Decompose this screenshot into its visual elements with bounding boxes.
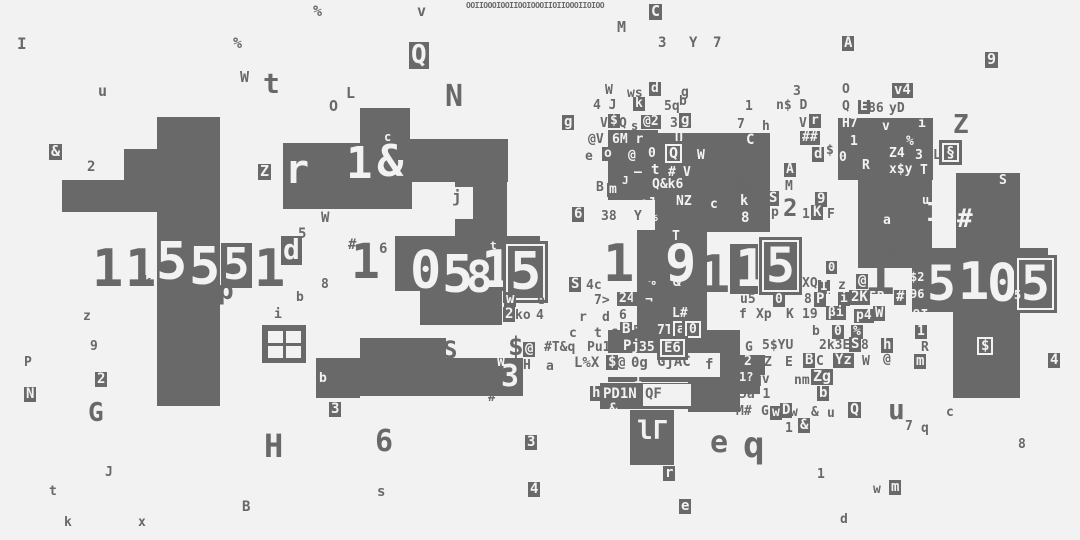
noise-glyph: S	[443, 338, 457, 362]
noise-glyph: Pj	[623, 339, 640, 353]
noise-glyph: q	[743, 428, 765, 464]
noise-glyph: XQ	[802, 277, 818, 290]
noise-glyph: S	[849, 337, 861, 352]
noise-glyph: GjAC	[657, 355, 691, 369]
noise-glyph: u	[827, 407, 835, 420]
noise-glyph: 2k3E	[819, 339, 850, 352]
noise-glyph: 1	[817, 468, 825, 481]
noise-glyph: 7	[713, 36, 721, 50]
noise-glyph: q	[921, 422, 929, 435]
noise-glyph: %	[313, 4, 322, 19]
noise-glyph: 4	[528, 482, 540, 497]
noise-glyph: V	[600, 117, 608, 130]
noise-glyph: O	[329, 99, 338, 114]
noise-glyph: m	[889, 480, 901, 495]
noise-glyph: b	[296, 291, 304, 304]
noise-glyph: 9	[90, 340, 98, 353]
noise-glyph: S	[569, 277, 581, 292]
noise-glyph: v4	[892, 83, 913, 98]
noise-glyph: t	[490, 240, 497, 251]
binary-string: OOIIOOOIOOIIOOIOOOIIOIIOOOIIOIOO	[466, 2, 604, 10]
noise-glyph: 5	[156, 236, 187, 288]
noise-glyph: 4 J	[593, 99, 616, 112]
noise-glyph: v	[417, 4, 426, 19]
noise-glyph: M#	[736, 405, 752, 418]
noise-glyph: 0	[685, 321, 701, 338]
noise-glyph: 5a 1	[739, 388, 770, 401]
noise-glyph: P	[814, 292, 826, 307]
noise-glyph: @	[617, 356, 625, 370]
noise-glyph: s	[631, 120, 638, 132]
noise-glyph: 5	[633, 325, 641, 338]
noise-glyph: i	[274, 308, 282, 321]
noise-glyph: 0	[839, 151, 847, 164]
noise-glyph: %	[650, 211, 658, 224]
noise-glyph: r	[809, 114, 821, 128]
noise-glyph: N	[24, 387, 36, 402]
noise-glyph: M	[785, 180, 793, 193]
noise-glyph: 0	[410, 245, 441, 297]
noise-glyph: c	[946, 406, 954, 419]
noise-glyph: $2	[910, 271, 924, 283]
noise-block	[410, 139, 508, 182]
noise-glyph: t	[49, 485, 57, 498]
noise-glyph: #	[894, 290, 906, 305]
noise-glyph: L	[933, 149, 941, 162]
noise-glyph: r	[285, 150, 309, 190]
noise-block	[124, 149, 157, 180]
noise-glyph: 7	[905, 420, 913, 433]
noise-glyph: 8	[804, 293, 812, 306]
noise-glyph: 35	[639, 341, 655, 354]
noise-glyph: 5$YU	[762, 339, 793, 352]
noise-glyph: z	[83, 310, 91, 323]
noise-glyph: 5	[298, 227, 306, 241]
noise-glyph: lΓ	[637, 418, 668, 444]
noise-glyph: Zg	[811, 369, 833, 385]
noise-glyph: u5	[740, 293, 756, 306]
noise-glyph: 1	[634, 373, 642, 386]
noise-glyph: QF	[645, 387, 662, 401]
noise-glyph: b	[817, 386, 829, 401]
noise-glyph: d	[812, 147, 824, 162]
noise-block	[360, 338, 446, 396]
noise-glyph: Q	[409, 42, 429, 69]
noise-glyph: w	[873, 483, 881, 496]
noise-glyph: Q	[665, 144, 682, 163]
noise-glyph: p	[771, 206, 779, 219]
noise-glyph: 8	[321, 278, 329, 291]
noise-glyph: 4	[1048, 353, 1060, 368]
noise-glyph: @2	[641, 115, 661, 129]
noise-glyph: 2K	[849, 290, 870, 305]
noise-glyph: t	[594, 327, 602, 340]
noise-glyph: 8	[739, 211, 751, 226]
noise-glyph: #T&q	[544, 341, 575, 354]
noise-glyph: p	[218, 278, 234, 304]
noise-glyph: k	[64, 516, 72, 529]
noise-glyph: K	[786, 308, 794, 321]
noise-glyph: C	[649, 4, 662, 20]
noise-glyph: P	[24, 356, 32, 369]
noise-glyph: 1	[603, 238, 634, 290]
noise-glyph: Xp	[756, 308, 772, 321]
noise-glyph: Pu1	[587, 341, 610, 354]
noise-glyph: 1	[346, 142, 373, 186]
noise-glyph: &	[798, 418, 810, 433]
noise-glyph: #	[488, 391, 496, 404]
noise-glyph: g	[562, 115, 574, 130]
noise-glyph: 19	[802, 308, 818, 321]
noise-glyph: $	[826, 144, 834, 157]
noise-glyph: 6	[379, 242, 387, 256]
noise-glyph: 7	[737, 118, 745, 131]
noise-glyph: Z	[258, 164, 271, 180]
noise-glyph: Y	[689, 36, 697, 50]
noise-glyph: 2	[87, 160, 95, 174]
noise-glyph: m	[607, 183, 619, 197]
noise-glyph: 3	[501, 362, 519, 392]
noise-glyph: h	[881, 338, 893, 353]
noise-block	[62, 180, 157, 212]
noise-glyph: c	[569, 327, 577, 340]
noise-glyph: u	[888, 396, 905, 424]
noise-glyph: r	[663, 466, 675, 481]
noise-glyph: h	[762, 120, 770, 133]
noise-glyph: 1	[915, 325, 927, 339]
noise-glyph: k	[633, 97, 645, 111]
noise-glyph: 1	[699, 249, 730, 301]
noise-glyph: A	[842, 36, 854, 51]
noise-glyph: L	[346, 86, 355, 101]
noise-glyph: oJ	[640, 197, 656, 210]
noise-glyph: 3	[793, 85, 801, 98]
noise-glyph: k	[143, 275, 151, 289]
noise-glyph: b	[679, 95, 687, 108]
noise-glyph: &	[49, 144, 62, 160]
noise-glyph: 3	[658, 36, 666, 50]
noise-glyph: f	[705, 358, 713, 372]
noise-glyph: #	[957, 206, 973, 232]
noise-glyph: 3	[329, 402, 341, 417]
noise-glyph: e	[679, 499, 691, 514]
noise-glyph: @	[628, 149, 636, 162]
noise-glyph: 2	[744, 355, 752, 368]
noise-glyph: 9	[985, 52, 998, 68]
noise-glyph: 7>	[594, 294, 610, 307]
noise-glyph: PD1N	[603, 387, 637, 401]
noise-glyph: w	[790, 406, 798, 419]
noise-glyph: Yz	[833, 353, 854, 368]
noise-glyph: 1	[802, 208, 810, 221]
noise-glyph: bf9I	[897, 309, 928, 322]
noise-glyph: I	[926, 200, 942, 226]
light-patch	[268, 331, 283, 343]
noise-glyph: e	[585, 150, 593, 163]
noise-glyph: B	[242, 500, 250, 514]
noise-glyph: 4c	[586, 279, 602, 292]
noise-glyph: s	[377, 485, 385, 499]
noise-glyph: 1	[92, 243, 123, 295]
noise-glyph: 5	[1014, 289, 1021, 301]
noise-glyph: L#	[672, 307, 688, 320]
noise-glyph: u	[98, 84, 107, 99]
noise-glyph: yD	[889, 102, 905, 115]
noise-glyph: Z	[953, 112, 969, 138]
noise-glyph: O	[842, 83, 850, 96]
noise-glyph: 0	[987, 258, 1018, 310]
noise-glyph: s	[611, 326, 619, 339]
noise-glyph: x$y	[889, 163, 912, 176]
noise-glyph: 0	[773, 293, 785, 307]
noise-glyph: N	[632, 292, 640, 305]
noise-glyph: g	[679, 113, 691, 128]
noise-glyph: qv	[754, 373, 770, 386]
noise-glyph: @V	[588, 133, 604, 146]
noise-glyph: c	[710, 198, 718, 211]
noise-glyph: v	[882, 120, 890, 133]
noise-glyph: r	[579, 311, 587, 324]
noise-glyph: 38	[601, 210, 617, 223]
noise-glyph: 6	[572, 207, 584, 222]
noise-glyph: T	[920, 164, 928, 177]
noise-glyph: W	[605, 84, 613, 97]
noise-glyph: 3	[670, 117, 678, 130]
noise-glyph: B	[596, 181, 604, 194]
noise-glyph: 4	[536, 309, 544, 322]
noise-glyph: W	[873, 306, 885, 321]
noise-glyph: 5	[927, 260, 956, 308]
noise-glyph: V	[683, 166, 691, 179]
light-patch	[268, 346, 283, 358]
noise-block	[720, 372, 733, 412]
noise-glyph: ##	[800, 131, 820, 145]
noise-glyph: 9	[746, 194, 754, 207]
noise-glyph: 3	[525, 435, 537, 450]
noise-glyph: f	[739, 308, 747, 321]
noise-glyph: 1	[850, 135, 858, 148]
noise-glyph: K	[811, 205, 823, 220]
noise-glyph: $	[977, 337, 993, 355]
noise-glyph: 0g	[631, 356, 648, 370]
noise-glyph: B	[620, 322, 632, 337]
noise-glyph: S	[999, 174, 1007, 187]
noise-glyph: L%X	[574, 356, 599, 370]
noise-glyph: p4	[854, 309, 874, 323]
noise-glyph: o	[602, 147, 614, 161]
noise-glyph: Z4	[889, 147, 905, 160]
noise-glyph: 6M r	[612, 133, 643, 146]
noise-glyph: a	[883, 214, 891, 227]
noise-glyph: 5R	[869, 291, 885, 304]
noise-glyph: h	[590, 386, 602, 401]
noise-glyph: m	[914, 354, 926, 369]
noise-glyph: 1	[351, 238, 380, 286]
glitch-canvas: I%%vOOIIOOOIOOIIOOIOOOIIOIIOOOIIOIOOMC3Y…	[0, 0, 1080, 540]
noise-glyph: b	[319, 372, 327, 385]
noise-glyph: S	[767, 191, 779, 206]
noise-glyph: d	[602, 311, 610, 324]
noise-glyph: a	[546, 360, 554, 373]
noise-glyph: 6	[375, 427, 393, 457]
noise-glyph: J	[790, 279, 798, 292]
noise-glyph: NZ	[676, 195, 692, 208]
noise-glyph: t	[263, 70, 280, 98]
noise-glyph: 86	[868, 102, 884, 115]
noise-glyph: –	[634, 166, 642, 179]
noise-glyph: x	[138, 516, 146, 529]
noise-glyph: W	[240, 70, 249, 85]
noise-glyph: @	[523, 342, 535, 357]
noise-glyph: 3	[915, 149, 923, 162]
noise-glyph: t	[649, 163, 661, 178]
noise-glyph: H	[264, 430, 283, 462]
noise-glyph: j	[452, 189, 462, 205]
light-patch	[286, 331, 301, 343]
noise-glyph: §	[942, 143, 959, 162]
noise-glyph: W	[321, 211, 329, 225]
noise-glyph: d	[840, 513, 848, 526]
noise-glyph: G	[761, 405, 769, 418]
noise-glyph: ¬	[645, 294, 653, 307]
noise-glyph: Z	[764, 356, 772, 369]
noise-glyph: i	[918, 117, 926, 130]
noise-glyph: B	[803, 353, 815, 368]
noise-glyph: w	[504, 292, 516, 307]
noise-glyph: J	[622, 175, 629, 186]
noise-glyph: 0	[832, 325, 844, 339]
noise-glyph: 8	[861, 339, 869, 352]
noise-glyph: W	[697, 149, 705, 162]
noise-glyph: 5q	[664, 100, 680, 113]
noise-glyph: 1	[745, 100, 753, 113]
noise-glyph: 1?	[739, 371, 753, 383]
noise-glyph: H7	[842, 117, 858, 130]
noise-glyph: b	[812, 325, 820, 338]
noise-glyph: V	[799, 117, 807, 130]
noise-glyph: $	[508, 334, 524, 360]
noise-glyph: 2	[95, 372, 107, 387]
noise-glyph: 7T	[657, 324, 673, 337]
noise-glyph: Q	[842, 100, 850, 113]
noise-glyph: N	[445, 82, 463, 112]
noise-glyph: %	[906, 135, 914, 148]
noise-glyph: 5	[1017, 258, 1054, 310]
noise-glyph: 1	[958, 256, 989, 308]
noise-glyph: Q	[848, 402, 861, 418]
noise-glyph: d	[649, 82, 661, 96]
noise-glyph: ko	[515, 309, 531, 322]
noise-glyph: 9	[665, 238, 696, 290]
noise-glyph: βi	[826, 306, 846, 320]
noise-glyph: C	[744, 133, 756, 148]
noise-glyph: 0	[826, 261, 837, 274]
noise-glyph: 2	[503, 307, 515, 322]
noise-glyph: W	[862, 355, 870, 368]
noise-glyph: E6	[660, 339, 685, 357]
noise-glyph: 96	[910, 288, 924, 300]
noise-glyph: Q	[619, 117, 627, 130]
noise-glyph: I	[17, 36, 27, 52]
noise-glyph: E	[785, 356, 793, 369]
noise-glyph: 1	[125, 243, 156, 295]
noise-glyph: i	[838, 292, 850, 306]
noise-glyph: M	[617, 20, 626, 35]
noise-glyph: @	[883, 353, 891, 366]
noise-glyph: H	[523, 359, 531, 372]
noise-glyph: G	[88, 400, 104, 426]
noise-glyph: &	[377, 140, 404, 184]
noise-glyph: e	[537, 294, 545, 307]
noise-glyph: Q&k6	[652, 178, 683, 191]
noise-glyph: nm	[794, 374, 810, 387]
noise-glyph: 5	[189, 241, 220, 293]
noise-glyph: e	[710, 428, 728, 458]
noise-glyph: 8	[1018, 438, 1026, 451]
noise-glyph: %	[233, 36, 242, 51]
noise-glyph: 2	[783, 196, 797, 220]
noise-glyph: Y	[634, 210, 642, 223]
noise-glyph: G	[745, 341, 753, 354]
noise-glyph: A	[784, 163, 796, 177]
noise-glyph: &	[811, 406, 819, 419]
noise-glyph: F	[827, 208, 835, 221]
noise-glyph: &	[609, 402, 617, 416]
noise-glyph: J	[105, 466, 113, 479]
light-patch	[286, 346, 301, 358]
noise-glyph: 0	[648, 147, 656, 160]
noise-glyph: n$ D	[776, 99, 807, 112]
noise-glyph: R	[862, 159, 870, 172]
noise-glyph: 1	[785, 422, 793, 435]
